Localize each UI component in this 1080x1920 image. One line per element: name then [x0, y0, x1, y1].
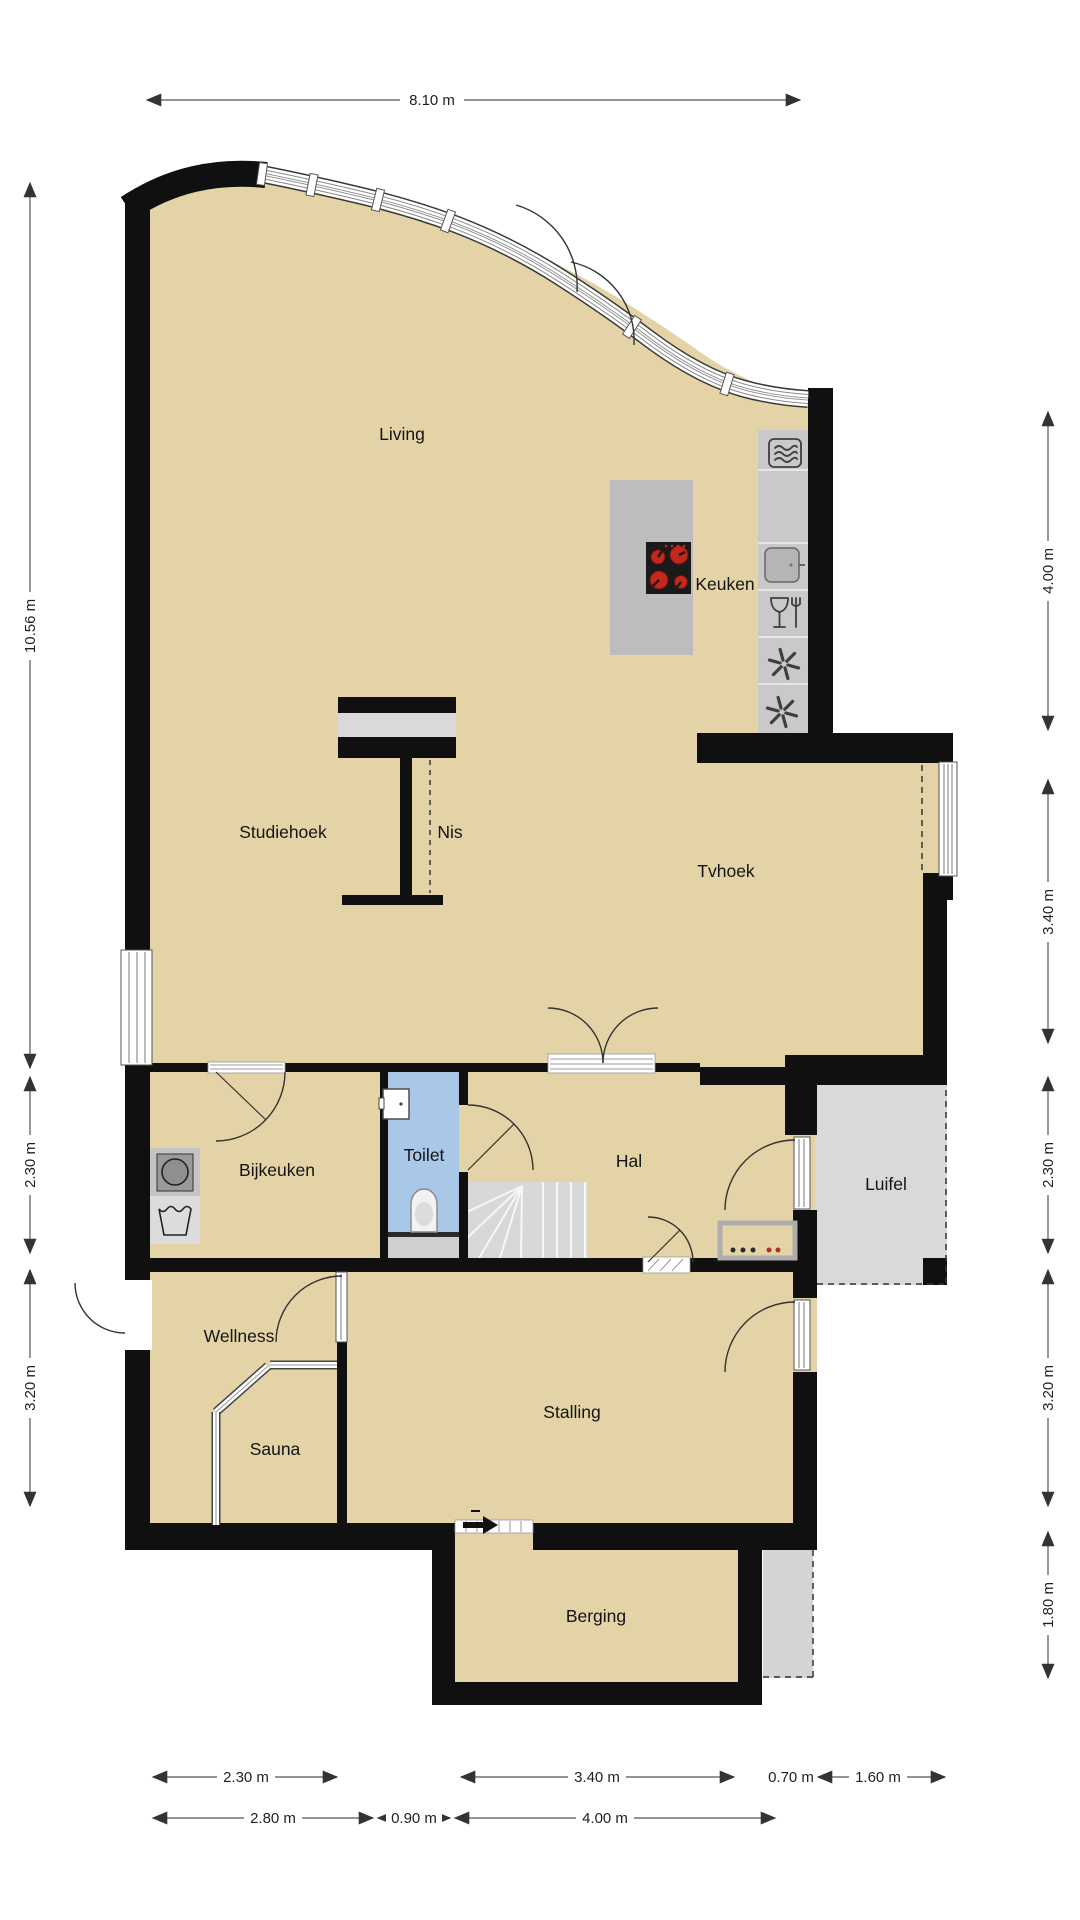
wall-toilet-hal-b: [459, 1172, 468, 1258]
wall-mid-bottom-a: [150, 1258, 643, 1272]
dim-label-b1-2: 3.40 m: [574, 1769, 620, 1786]
toilet-bowl-icon: [411, 1189, 437, 1232]
paving-strip: [763, 1548, 813, 1678]
wall-luifel-pillar: [923, 1258, 947, 1285]
wall-berging-right: [738, 1523, 762, 1705]
wall-right-tvhoek-b: [923, 900, 947, 1085]
wall-entry-pillar: [785, 1055, 817, 1135]
dim-label-right-3: 2.30 m: [1040, 1142, 1057, 1188]
dim-label-right-1: 4.00 m: [1040, 548, 1057, 594]
dim-label-b2-2: 0.90 m: [391, 1810, 437, 1827]
dim-bottom2-2: 0.90 m: [378, 1808, 450, 1828]
wall-berging-bottom: [432, 1682, 762, 1705]
room-label-studiehoek: Studiehoek: [239, 822, 327, 842]
dim-label-b2-1: 2.80 m: [250, 1810, 296, 1827]
dim-right-5: 1.80 m: [1038, 1532, 1058, 1678]
dim-right-3: 2.30 m: [1038, 1077, 1058, 1253]
dim-bottom1-2: 3.40 m: [461, 1767, 734, 1787]
cooktop-icon: [646, 542, 691, 594]
dim-label-left-2: 2.30 m: [22, 1142, 39, 1188]
room-label-berging: Berging: [566, 1606, 626, 1626]
room-label-toilet: Toilet: [404, 1145, 445, 1165]
dim-label-b1-3: 0.70 m: [768, 1769, 814, 1786]
dim-label-b1-4: 1.60 m: [855, 1769, 901, 1786]
wall-stub-keuken: [697, 733, 953, 763]
dim-label-b1-1: 2.30 m: [223, 1769, 269, 1786]
wall-hal-right-b: [793, 1372, 817, 1523]
washing-machine-icon: [150, 1148, 200, 1196]
left-wall-window: [121, 950, 152, 1065]
dim-right-2: 3.40 m: [1038, 780, 1058, 1043]
room-label-luifel: Luifel: [865, 1174, 907, 1194]
dim-left-3: 3.20 m: [20, 1270, 40, 1506]
room-label-nis: Nis: [437, 822, 463, 842]
floorplan-page: Living Keuken Studiehoek Nis Tvhoek Bijk…: [0, 0, 1080, 1920]
dim-right-1: 4.00 m: [1038, 412, 1058, 730]
wall-berging-left: [432, 1547, 455, 1705]
wellness-door-opening: [123, 1280, 152, 1350]
wall-south-tvhoek: [817, 1055, 925, 1085]
washbasin-icon: [379, 1089, 409, 1119]
kitchen-sink-icon: [765, 548, 805, 582]
dim-top: 8.10 m: [147, 90, 800, 110]
tvhoek-window: [939, 762, 957, 876]
room-label-stalling: Stalling: [543, 1402, 600, 1422]
room-label-keuken: Keuken: [695, 574, 754, 594]
wall-bottom-b: [533, 1523, 817, 1550]
room-label-bijkeuken: Bijkeuken: [239, 1160, 315, 1180]
lower-floor: [140, 1272, 817, 1523]
room-label-tvhoek: Tvhoek: [697, 861, 755, 881]
wall-south-living-4: [700, 1067, 785, 1085]
laundry-tub-icon: [150, 1196, 200, 1244]
dim-bottom1-3: 0.70 m: [768, 1769, 814, 1786]
dim-label-right-2: 3.40 m: [1040, 889, 1057, 935]
bijkeuken-door-threshold: [208, 1062, 285, 1073]
dim-label-left-3: 3.20 m: [22, 1365, 39, 1411]
wall-toilet-hal-a: [459, 1072, 468, 1105]
dim-bottom1-4: 1.60 m: [818, 1767, 945, 1787]
toilet-cabinet-divider: [388, 1232, 459, 1237]
floorplan-svg: Living Keuken Studiehoek Nis Tvhoek Bijk…: [0, 0, 1080, 1920]
dim-left-1: 10.56 m: [20, 183, 40, 1068]
dim-label-left-1: 10.56 m: [22, 599, 39, 653]
room-label-sauna: Sauna: [250, 1439, 301, 1459]
living-floor: [150, 180, 812, 1072]
wall-right-tvhoek-a: [923, 873, 953, 900]
dim-label-right-4: 3.20 m: [1040, 1365, 1057, 1411]
toilet-cabinet: [388, 1237, 459, 1258]
wall-south-living-1: [150, 1063, 208, 1072]
nis-gray-bar: [338, 713, 456, 737]
dim-bottom1-1: 2.30 m: [153, 1767, 337, 1787]
wall-south-living-2: [285, 1063, 548, 1072]
dim-left-2: 2.30 m: [20, 1077, 40, 1253]
room-label-hal: Hal: [616, 1151, 642, 1171]
room-label-wellness: Wellness: [204, 1326, 275, 1346]
wall-sauna-divider: [337, 1342, 347, 1527]
wellness-exterior-door: [75, 1283, 125, 1333]
wall-south-living-3: [655, 1063, 700, 1072]
dim-label-b2-3: 4.00 m: [582, 1810, 628, 1827]
wall-right-kitchen: [808, 388, 833, 763]
dim-label-right-5: 1.80 m: [1040, 1582, 1057, 1628]
tvhoek-floor: [800, 763, 941, 1085]
dim-bottom2-3: 4.00 m: [455, 1808, 775, 1828]
dim-right-4: 3.20 m: [1038, 1270, 1058, 1506]
dim-bottom2-1: 2.80 m: [153, 1808, 373, 1828]
room-label-living: Living: [379, 424, 425, 444]
staircase-icon: [467, 1182, 588, 1258]
dim-label-top: 8.10 m: [409, 92, 455, 109]
wall-bottom-a: [125, 1523, 455, 1550]
